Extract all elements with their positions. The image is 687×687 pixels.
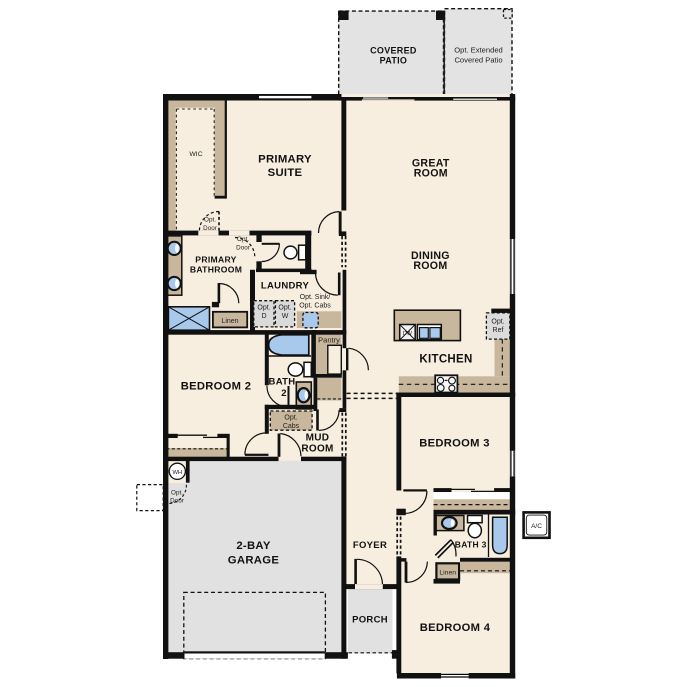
svg-text:2-BAY: 2-BAY — [236, 540, 271, 552]
svg-text:PRIMARY: PRIMARY — [258, 154, 312, 166]
svg-text:WIC: WIC — [189, 151, 202, 158]
svg-text:PATIO: PATIO — [380, 56, 408, 66]
svg-text:BEDROOM 3: BEDROOM 3 — [419, 437, 489, 449]
svg-text:BATH 3: BATH 3 — [455, 540, 487, 550]
svg-text:Opt.: Opt. — [171, 490, 183, 497]
svg-text:Opt.: Opt. — [257, 305, 270, 312]
svg-text:SUITE: SUITE — [268, 167, 303, 179]
svg-text:Opt.: Opt. — [237, 236, 249, 243]
svg-text:Ref: Ref — [493, 327, 504, 334]
svg-text:W: W — [282, 313, 289, 320]
svg-text:Opt.: Opt. — [491, 319, 504, 326]
svg-text:ROOM: ROOM — [413, 260, 447, 272]
svg-text:MUD: MUD — [306, 433, 330, 444]
svg-text:LAUNDRY: LAUNDRY — [261, 281, 310, 292]
svg-text:BATHROOM: BATHROOM — [190, 265, 242, 275]
svg-text:Opt. Extended: Opt. Extended — [454, 46, 503, 55]
svg-text:Covered Patio: Covered Patio — [454, 56, 502, 65]
svg-text:Door: Door — [170, 498, 184, 505]
svg-text:Opt. Cabs: Opt. Cabs — [299, 303, 331, 310]
svg-text:Opt.: Opt. — [284, 415, 297, 422]
svg-text:BATH: BATH — [269, 377, 296, 388]
svg-text:COVERED: COVERED — [370, 46, 417, 56]
svg-text:Linen: Linen — [439, 570, 456, 577]
svg-text:PORCH: PORCH — [352, 615, 388, 626]
svg-text:ROOM: ROOM — [414, 168, 448, 180]
svg-text:ROOM: ROOM — [301, 444, 333, 455]
svg-text:Door: Door — [236, 245, 250, 252]
svg-text:Opt.: Opt. — [278, 305, 291, 312]
svg-text:Cabs: Cabs — [283, 423, 300, 430]
svg-text:D: D — [261, 313, 266, 320]
svg-text:PRIMARY: PRIMARY — [195, 255, 236, 265]
svg-text:FOYER: FOYER — [353, 540, 387, 551]
svg-text:WH: WH — [172, 470, 182, 476]
svg-text:A/C: A/C — [531, 523, 542, 530]
svg-text:2: 2 — [281, 388, 287, 399]
svg-text:Opt.: Opt. — [204, 217, 216, 224]
svg-text:Opt. Sink/: Opt. Sink/ — [300, 294, 331, 301]
svg-text:BEDROOM 4: BEDROOM 4 — [420, 622, 491, 634]
svg-text:Linen: Linen — [221, 318, 238, 325]
svg-text:DW: DW — [403, 331, 413, 337]
svg-text:GARAGE: GARAGE — [228, 555, 280, 567]
svg-text:Pantry: Pantry — [318, 336, 340, 345]
svg-text:BEDROOM 2: BEDROOM 2 — [181, 381, 251, 393]
svg-text:KITCHEN: KITCHEN — [419, 354, 472, 366]
